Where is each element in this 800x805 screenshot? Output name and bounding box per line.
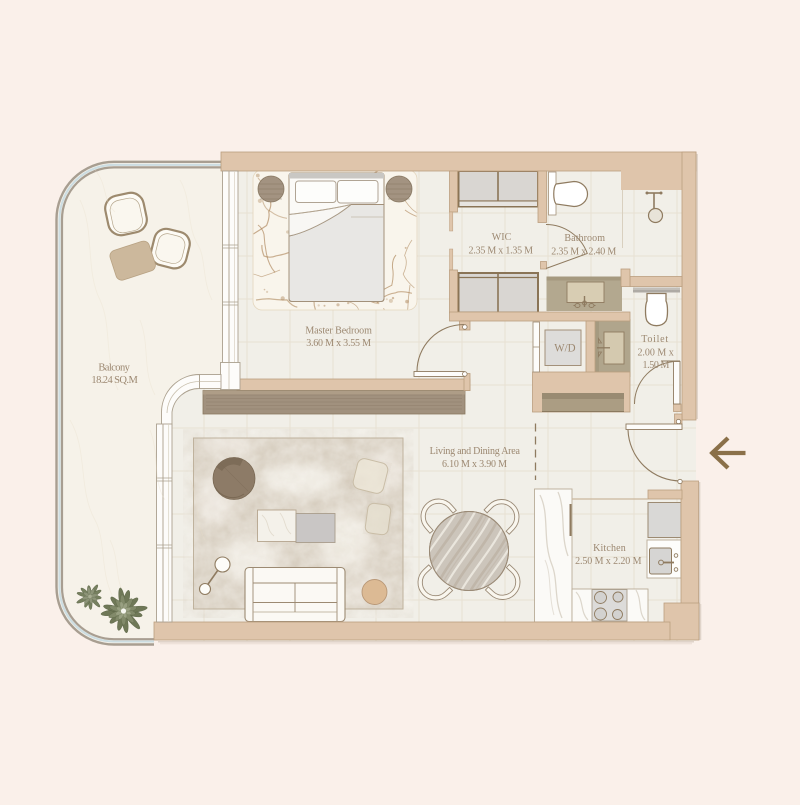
svg-text:Balcony: Balcony bbox=[98, 363, 130, 374]
svg-text:18.24 SQ.M: 18.24 SQ.M bbox=[91, 375, 138, 386]
svg-text:Bathroom: Bathroom bbox=[564, 233, 605, 244]
svg-text:1.50 M: 1.50 M bbox=[643, 360, 670, 371]
svg-text:W/D: W/D bbox=[554, 343, 575, 355]
svg-text:Kitchen: Kitchen bbox=[593, 543, 626, 554]
svg-text:2.35 M x 2.40 M: 2.35 M x 2.40 M bbox=[551, 247, 616, 258]
svg-text:Living and Dining Area: Living and Dining Area bbox=[430, 446, 521, 457]
svg-text:WIC: WIC bbox=[492, 232, 512, 243]
svg-text:3.60 M x 3.55 M: 3.60 M x 3.55 M bbox=[306, 338, 371, 349]
svg-text:6.10 M x 3.90 M: 6.10 M x 3.90 M bbox=[442, 459, 507, 470]
svg-text:Master Bedroom: Master Bedroom bbox=[305, 326, 372, 337]
svg-text:Toilet: Toilet bbox=[641, 334, 668, 345]
svg-text:2.00 M x: 2.00 M x bbox=[637, 348, 673, 359]
svg-text:2.50 M x 2.20 M: 2.50 M x 2.20 M bbox=[575, 556, 641, 567]
svg-text:2.35 M x 1.35 M: 2.35 M x 1.35 M bbox=[469, 246, 534, 257]
